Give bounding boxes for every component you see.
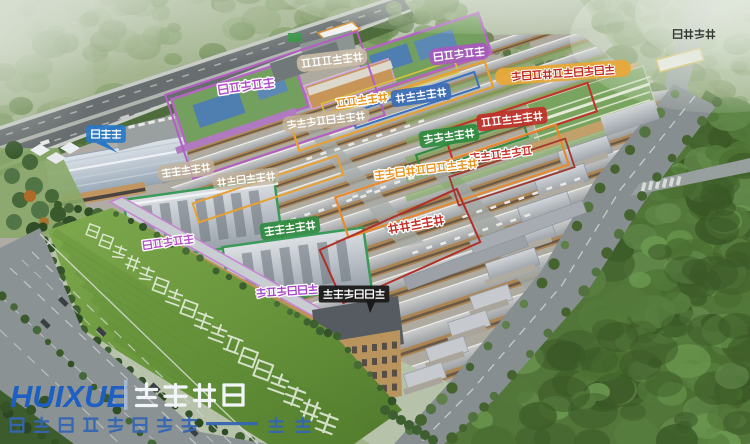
svg-text:HUIXUE: HUIXUE (10, 379, 128, 414)
